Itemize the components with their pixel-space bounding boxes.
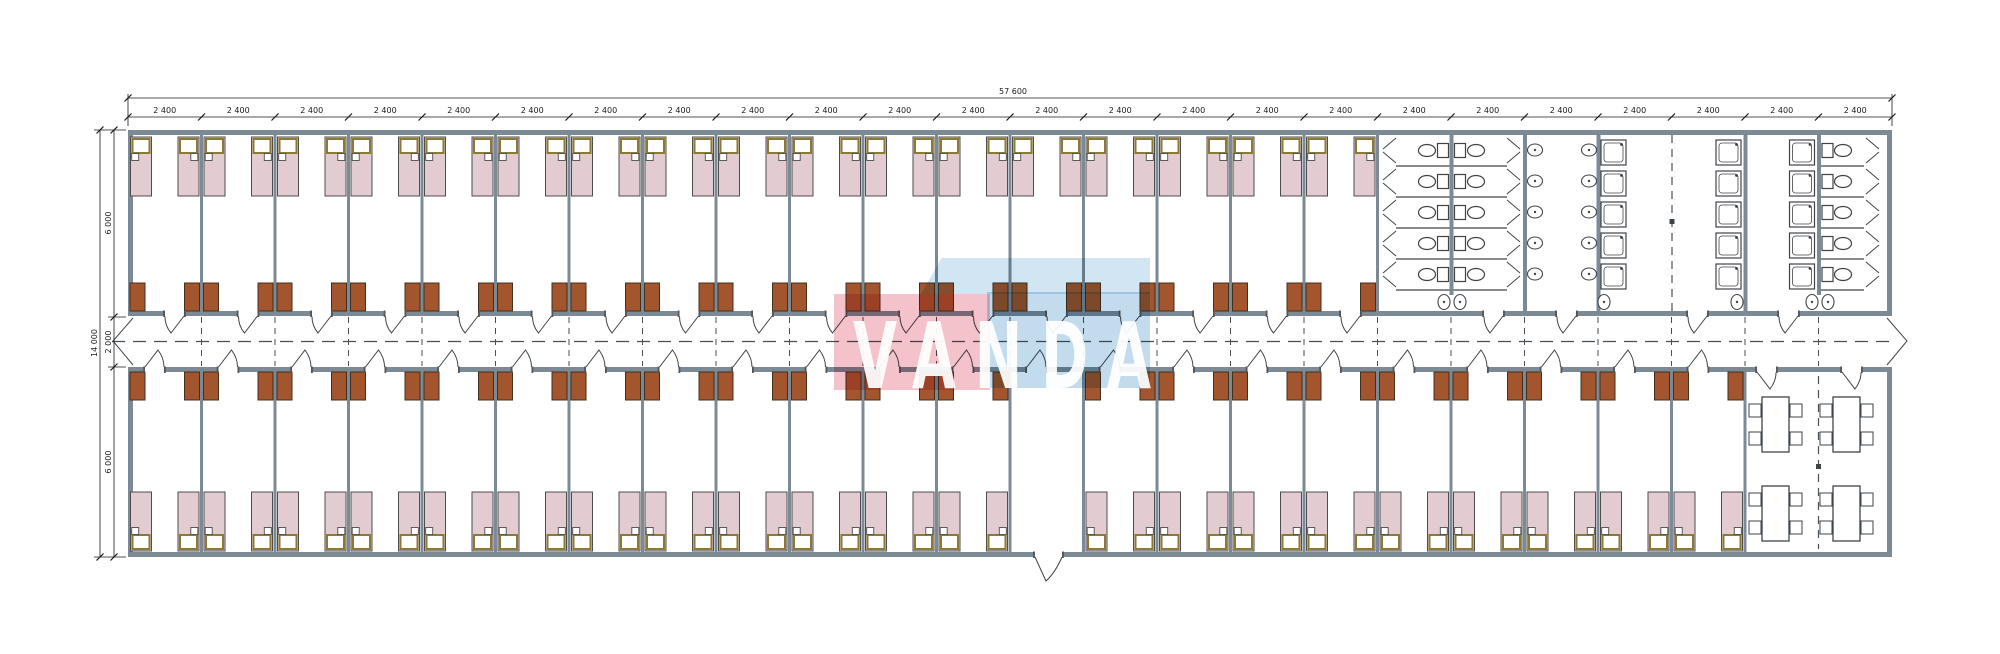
wardrobe <box>1527 372 1542 400</box>
blanket-fold <box>352 154 359 161</box>
wc-stall-door <box>1383 152 1396 163</box>
shower-drain <box>1735 143 1738 146</box>
wardrobe <box>939 372 954 400</box>
partition-wall <box>1229 135 1232 311</box>
blanket-fold <box>264 528 271 535</box>
wall-opening <box>439 367 458 372</box>
blanket-fold <box>720 528 727 535</box>
washbasin-tap <box>1534 211 1536 213</box>
wall-opening <box>459 311 478 316</box>
door-jamb <box>658 367 660 374</box>
blanket-fold <box>646 528 653 535</box>
toilet-cistern <box>1438 144 1449 158</box>
door-jamb <box>1025 367 1027 374</box>
washbasin-tap <box>1588 211 1590 213</box>
shower-drain <box>1620 236 1623 239</box>
door-leaf <box>1047 316 1066 333</box>
wc-stall-door <box>1383 245 1396 256</box>
door-jamb <box>1339 311 1341 318</box>
wall-opening <box>533 311 552 316</box>
blanket-fold <box>1308 154 1315 161</box>
blanket-fold <box>1602 528 1609 535</box>
pillow <box>721 139 738 153</box>
door-jamb <box>584 367 586 374</box>
door-jamb <box>511 367 513 374</box>
wardrobe <box>258 372 273 400</box>
wardrobe <box>479 283 494 311</box>
wardrobe <box>1655 372 1670 400</box>
toilet-bowl <box>1835 238 1852 250</box>
pillow <box>280 535 297 549</box>
wardrobe <box>552 372 567 400</box>
chair <box>1861 521 1873 534</box>
dimension-label: 2 400 <box>1476 106 1499 115</box>
pillow <box>721 535 738 549</box>
door-jamb <box>1561 367 1563 374</box>
blanket-fold <box>426 528 433 535</box>
wc-stall-door <box>1507 183 1520 194</box>
door-jamb <box>164 367 166 374</box>
washbasin-tap <box>1588 273 1590 275</box>
wall-opening <box>1557 311 1576 316</box>
toilet-bowl <box>1419 176 1436 188</box>
chair <box>1861 493 1873 506</box>
door-jamb <box>1487 367 1489 374</box>
door-jamb <box>437 367 439 374</box>
chair <box>1820 493 1832 506</box>
partition-wall <box>935 372 938 552</box>
toilet-cistern <box>1438 175 1449 189</box>
dimension-label: 2 400 <box>300 106 323 115</box>
door-jamb <box>384 311 386 318</box>
door-jamb <box>993 311 995 318</box>
wardrobe <box>1140 372 1155 400</box>
door-jamb <box>552 311 554 318</box>
pillow <box>500 139 517 153</box>
chair <box>1790 404 1802 417</box>
wall-opening <box>606 311 625 316</box>
door-jamb <box>331 311 333 318</box>
door-jamb <box>805 367 807 374</box>
wardrobe <box>865 372 880 400</box>
blanket-fold <box>1234 528 1241 535</box>
wall-opening <box>1341 311 1360 316</box>
pillow <box>1503 535 1520 549</box>
chair <box>1820 432 1832 445</box>
pillow <box>133 535 150 549</box>
partition-wall <box>641 372 644 552</box>
wc-stall-door <box>1383 262 1396 273</box>
shower-drain <box>1809 174 1812 177</box>
wardrobe <box>920 372 935 400</box>
blanket-fold <box>338 528 345 535</box>
wardrobe <box>1287 372 1302 400</box>
pillow <box>647 535 664 549</box>
wardrobe <box>1600 372 1615 400</box>
shower-drain <box>1735 205 1738 208</box>
washbasin-tap <box>1534 242 1536 244</box>
wardrobe <box>1728 372 1743 400</box>
toilet-bowl <box>1468 207 1485 219</box>
wardrobe <box>1159 372 1174 400</box>
blanket-fold <box>1308 528 1315 535</box>
door-jamb <box>679 367 681 374</box>
pillow <box>1015 139 1032 153</box>
shower-drain <box>1620 267 1623 270</box>
wardrobe <box>718 372 733 400</box>
door-leaf <box>1035 557 1062 581</box>
partition-wall <box>200 372 203 552</box>
pillow <box>548 139 565 153</box>
wc-stall-door <box>1866 214 1879 225</box>
pillow <box>647 139 664 153</box>
door-jamb <box>1613 367 1615 374</box>
door-jamb <box>1687 367 1689 374</box>
door-leaf <box>1321 350 1340 367</box>
partition-wall <box>1450 372 1453 552</box>
wardrobe <box>699 283 714 311</box>
blanket-fold <box>1734 528 1741 535</box>
dimension-label: 2 400 <box>447 106 470 115</box>
sanitary-wall <box>1744 135 1748 311</box>
partition-wall <box>1376 135 1379 311</box>
pillow <box>1356 139 1373 153</box>
dimension-label: 2 400 <box>1256 106 1279 115</box>
pillow <box>180 535 197 549</box>
wc-stall-door <box>1383 214 1396 225</box>
toilet-bowl <box>1419 145 1436 157</box>
blanket-fold <box>1381 528 1388 535</box>
door-leaf <box>1557 316 1576 333</box>
floor-plan-drawing: 57 6002 4002 4002 4002 4002 4002 4002 40… <box>0 0 2000 654</box>
wc-stall-door <box>1507 276 1520 287</box>
blanket-fold <box>279 154 286 161</box>
partition-wall <box>347 372 350 552</box>
dimension-label: 6 000 <box>104 451 113 474</box>
door-jamb <box>1033 552 1035 559</box>
pillow <box>1283 535 1300 549</box>
wc-stall-door <box>1383 200 1396 211</box>
door-jamb <box>878 367 880 374</box>
pillow <box>1430 535 1447 549</box>
washbasin-tap <box>1534 273 1536 275</box>
door-jamb <box>238 367 240 374</box>
dining-room-wall <box>1744 372 1747 552</box>
wc-stall-door <box>1507 231 1520 242</box>
wall-opening <box>827 311 846 316</box>
partition-wall <box>1156 372 1159 552</box>
shower-drain <box>1735 236 1738 239</box>
blanket-fold <box>191 528 198 535</box>
wardrobe <box>645 283 660 311</box>
wardrobe <box>571 372 586 400</box>
door-jamb <box>952 367 954 374</box>
door-leaf <box>974 316 993 333</box>
wall-opening <box>292 367 311 372</box>
door-jamb <box>731 367 733 374</box>
door-jamb <box>1798 311 1800 318</box>
door-leaf <box>1101 350 1120 367</box>
blanket-fold <box>999 154 1006 161</box>
door-jamb <box>605 367 607 374</box>
wc-stall-door <box>1383 231 1396 242</box>
door-leaf <box>1121 316 1140 333</box>
toilet-bowl <box>1835 145 1852 157</box>
door-leaf <box>292 350 311 367</box>
door-jamb <box>405 311 407 318</box>
door-jamb <box>1213 311 1215 318</box>
door-leaf <box>1757 372 1776 389</box>
door-jamb <box>258 311 260 318</box>
door-jamb <box>1193 367 1195 374</box>
sanitary-wall <box>1523 135 1527 311</box>
wall-opening <box>753 311 772 316</box>
dimension-label: 2 400 <box>374 106 397 115</box>
blanket-fold <box>485 528 492 535</box>
washbasin-tap <box>1811 301 1813 303</box>
door-leaf <box>660 350 679 367</box>
wall-opening <box>680 311 699 316</box>
wardrobe <box>792 283 807 311</box>
partition-wall <box>494 135 497 311</box>
wall-opening <box>513 367 532 372</box>
partition-wall <box>1229 372 1232 552</box>
pillow <box>868 139 885 153</box>
partition-wall <box>200 135 203 311</box>
pillow <box>768 535 785 549</box>
blanket-fold <box>1367 528 1374 535</box>
door-jamb <box>1414 367 1416 374</box>
wardrobe <box>204 283 219 311</box>
door-leaf <box>513 350 532 367</box>
wall-opening <box>1779 311 1798 316</box>
pillow <box>621 139 638 153</box>
blanket-fold <box>132 528 139 535</box>
wardrobe <box>1086 283 1101 311</box>
wc-stall-door <box>1866 245 1879 256</box>
dimension-label: 2 400 <box>741 106 764 115</box>
blanket-fold <box>338 154 345 161</box>
door-jamb <box>1634 367 1636 374</box>
door-jamb <box>1555 311 1557 318</box>
blanket-fold <box>1087 528 1094 535</box>
pillow <box>1235 535 1252 549</box>
dimension-label: 2 400 <box>594 106 617 115</box>
wc-stall-door <box>1383 138 1396 149</box>
wardrobe <box>626 372 641 400</box>
door-jamb <box>1466 367 1468 374</box>
wardrobe <box>1306 283 1321 311</box>
door-jamb <box>1708 367 1710 374</box>
door-jamb <box>1046 367 1048 374</box>
partition-wall <box>421 372 424 552</box>
pillow <box>1577 535 1594 549</box>
door-jamb <box>1192 311 1194 318</box>
dimension-label: 2 400 <box>1697 106 1720 115</box>
toilet-cistern <box>1455 175 1466 189</box>
wall-opening <box>1842 367 1861 372</box>
blanket-fold <box>632 154 639 161</box>
shower-drain <box>1735 267 1738 270</box>
axis-marker <box>1816 464 1821 469</box>
wardrobe <box>1214 283 1229 311</box>
partition-wall <box>1009 372 1012 552</box>
dimension-label: 2 400 <box>668 106 691 115</box>
washbasin-tap <box>1588 149 1590 151</box>
blanket-fold <box>926 154 933 161</box>
door-jamb <box>972 311 974 318</box>
wardrobe <box>405 372 420 400</box>
door-jamb <box>1120 367 1122 374</box>
pillow <box>206 535 223 549</box>
door-leaf <box>1615 350 1634 367</box>
partition-wall <box>788 135 791 311</box>
wardrobe <box>1306 372 1321 400</box>
wc-stall-door <box>1866 276 1879 287</box>
wardrobe <box>1233 283 1248 311</box>
wc-stall-door <box>1866 138 1879 149</box>
door-jamb <box>752 367 754 374</box>
door-jamb <box>1861 367 1863 374</box>
door-jamb <box>1340 367 1342 374</box>
wc-stall-door <box>1383 276 1396 287</box>
toilet-bowl <box>1468 269 1485 281</box>
door-jamb <box>699 311 701 318</box>
door-leaf <box>1268 316 1287 333</box>
chair <box>1861 432 1873 445</box>
blanket-fold <box>1675 528 1682 535</box>
wardrobe <box>185 372 200 400</box>
partition-wall <box>641 135 644 311</box>
door-leaf <box>1689 350 1708 367</box>
chair <box>1861 404 1873 417</box>
wardrobe <box>185 283 200 311</box>
blanket-fold <box>1587 528 1594 535</box>
dimension-label: 2 400 <box>153 106 176 115</box>
pillow <box>1356 535 1373 549</box>
blanket-fold <box>632 528 639 535</box>
partition-wall <box>788 372 791 552</box>
wall-opening <box>1174 367 1193 372</box>
wall-opening <box>386 311 405 316</box>
pillow <box>842 139 859 153</box>
toilet-bowl <box>1468 145 1485 157</box>
wardrobe <box>1674 372 1689 400</box>
wc-stall-door <box>1866 200 1879 211</box>
blanket-fold <box>646 154 653 161</box>
pillow <box>1724 535 1741 549</box>
door-leaf <box>733 350 752 367</box>
door-jamb <box>310 311 312 318</box>
partition-wall <box>862 372 865 552</box>
dimension-label: 6 000 <box>104 212 113 235</box>
wall-opening <box>1121 311 1140 316</box>
pillow <box>427 535 444 549</box>
wardrobe <box>1581 372 1596 400</box>
washbasin-tap <box>1827 301 1829 303</box>
door-leaf <box>753 316 772 333</box>
wardrobe <box>993 372 1008 400</box>
dimension-label: 2 400 <box>227 106 250 115</box>
chair <box>1749 493 1761 506</box>
door-leaf <box>533 316 552 333</box>
washbasin-tap <box>1588 242 1590 244</box>
door-jamb <box>898 311 900 318</box>
pillow <box>794 535 811 549</box>
dimension-label: 2 400 <box>1770 106 1793 115</box>
pillow <box>1209 535 1226 549</box>
door-jamb <box>973 367 975 374</box>
door-leaf <box>1174 350 1193 367</box>
door-jamb <box>1319 367 1321 374</box>
wardrobe <box>1361 372 1376 400</box>
door-jamb <box>1776 367 1778 374</box>
wardrobe <box>773 283 788 311</box>
blanket-fold <box>132 154 139 161</box>
wall-opening <box>1468 367 1487 372</box>
toilet-bowl <box>1468 176 1485 188</box>
blanket-fold <box>779 528 786 535</box>
door-jamb <box>678 311 680 318</box>
door-leaf <box>1484 316 1503 333</box>
dimension-label: 2 400 <box>815 106 838 115</box>
chair <box>1749 521 1761 534</box>
door-jamb <box>531 311 533 318</box>
blanket-fold <box>499 528 506 535</box>
dining-table <box>1762 397 1789 452</box>
wardrobe <box>846 372 861 400</box>
wardrobe <box>351 372 366 400</box>
wall-opening <box>954 367 973 372</box>
wall-opening <box>1689 367 1708 372</box>
wardrobe <box>939 283 954 311</box>
wardrobe <box>773 372 788 400</box>
blanket-fold <box>1514 528 1521 535</box>
door-jamb <box>385 367 387 374</box>
toilet-bowl <box>1835 269 1852 281</box>
wall-opening <box>1027 367 1046 372</box>
door-leaf <box>606 316 625 333</box>
blanket-fold <box>558 154 565 161</box>
washbasin-tap <box>1459 301 1461 303</box>
washbasin-tap <box>1534 149 1536 151</box>
door-jamb <box>237 311 239 318</box>
blanket-fold <box>940 528 947 535</box>
wall-opening <box>1757 367 1776 372</box>
pillow <box>574 535 591 549</box>
wardrobe <box>920 283 935 311</box>
pillow <box>941 139 958 153</box>
door-leaf <box>827 316 846 333</box>
toilet-cistern <box>1455 237 1466 251</box>
pillow <box>280 139 297 153</box>
blanket-fold <box>279 528 286 535</box>
pillow <box>1650 535 1667 549</box>
toilet-bowl <box>1419 238 1436 250</box>
door-leaf <box>366 350 385 367</box>
pillow <box>500 535 517 549</box>
door-jamb <box>1540 367 1542 374</box>
shower-drain <box>1620 205 1623 208</box>
dimension-label: 2 400 <box>1403 106 1426 115</box>
door-leaf <box>1542 350 1561 367</box>
door-jamb <box>1360 311 1362 318</box>
chair <box>1820 404 1832 417</box>
wardrobe <box>1434 372 1449 400</box>
door-jamb <box>1266 311 1268 318</box>
toilet-bowl <box>1419 269 1436 281</box>
blanket-fold <box>352 528 359 535</box>
